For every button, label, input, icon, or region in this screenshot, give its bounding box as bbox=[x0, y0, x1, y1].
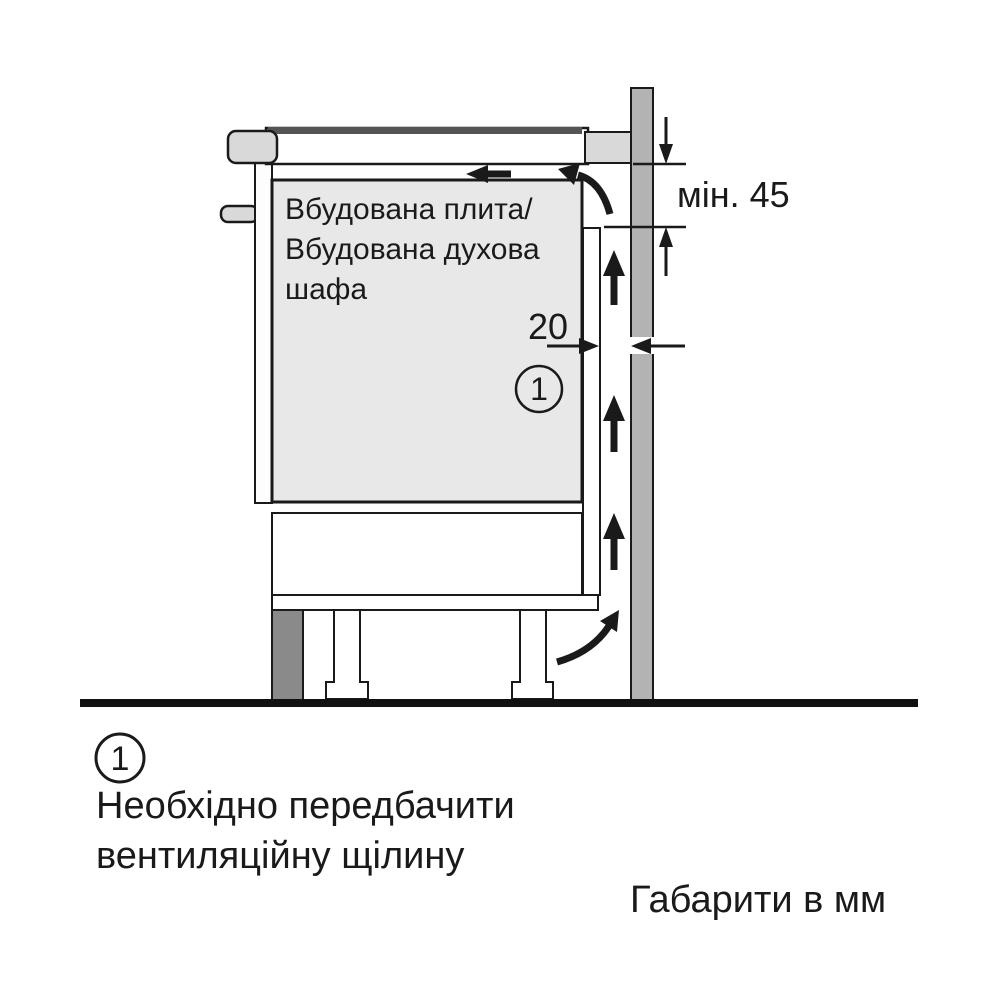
side-panel-strip bbox=[583, 228, 600, 595]
floor-line bbox=[80, 699, 918, 707]
footnote-line1: Необхідно передбачити bbox=[96, 785, 515, 827]
dim-min45-down-arrow-head bbox=[659, 144, 673, 164]
units-label: Габарити в мм bbox=[630, 879, 886, 921]
airflow-curved-bottom-arrow-shaft bbox=[557, 626, 609, 662]
cooktop-right-cap bbox=[585, 132, 632, 163]
cooktop-glass-top bbox=[268, 127, 582, 134]
appliance-label-line1: Вбудована плита/ bbox=[285, 193, 533, 226]
wall bbox=[631, 88, 653, 700]
footnote-line2: вентиляційну щілину bbox=[96, 835, 464, 877]
oven-door-panel bbox=[255, 163, 272, 503]
footnote-marker-number: 1 bbox=[111, 740, 130, 778]
right-foot bbox=[512, 610, 553, 699]
dim-min45-up-arrow-head bbox=[659, 227, 673, 247]
airflow-up-arrow-1 bbox=[603, 250, 625, 305]
appliance-label-line3: шафа bbox=[285, 273, 367, 306]
installation-diagram: Вбудована плита/ Вбудована духова шафа м… bbox=[0, 0, 1000, 1000]
drawer-box bbox=[272, 513, 582, 597]
diagram-svg: Вбудована плита/ Вбудована духова шафа м… bbox=[0, 0, 1000, 1000]
left-foot bbox=[326, 610, 368, 699]
cooktop-left-cap bbox=[228, 131, 277, 163]
dim-20-label: 20 bbox=[528, 306, 568, 347]
airflow-up-arrow-3 bbox=[603, 513, 625, 570]
dim-min45-label: мін. 45 bbox=[677, 174, 790, 215]
oven-door-handle bbox=[221, 206, 258, 222]
appliance-label-line2: Вбудована духова bbox=[285, 233, 540, 266]
callout-number: 1 bbox=[530, 371, 548, 407]
airflow-up-arrow-2 bbox=[603, 395, 625, 452]
plinth-rail bbox=[272, 595, 598, 610]
front-plinth-panel bbox=[272, 610, 303, 700]
